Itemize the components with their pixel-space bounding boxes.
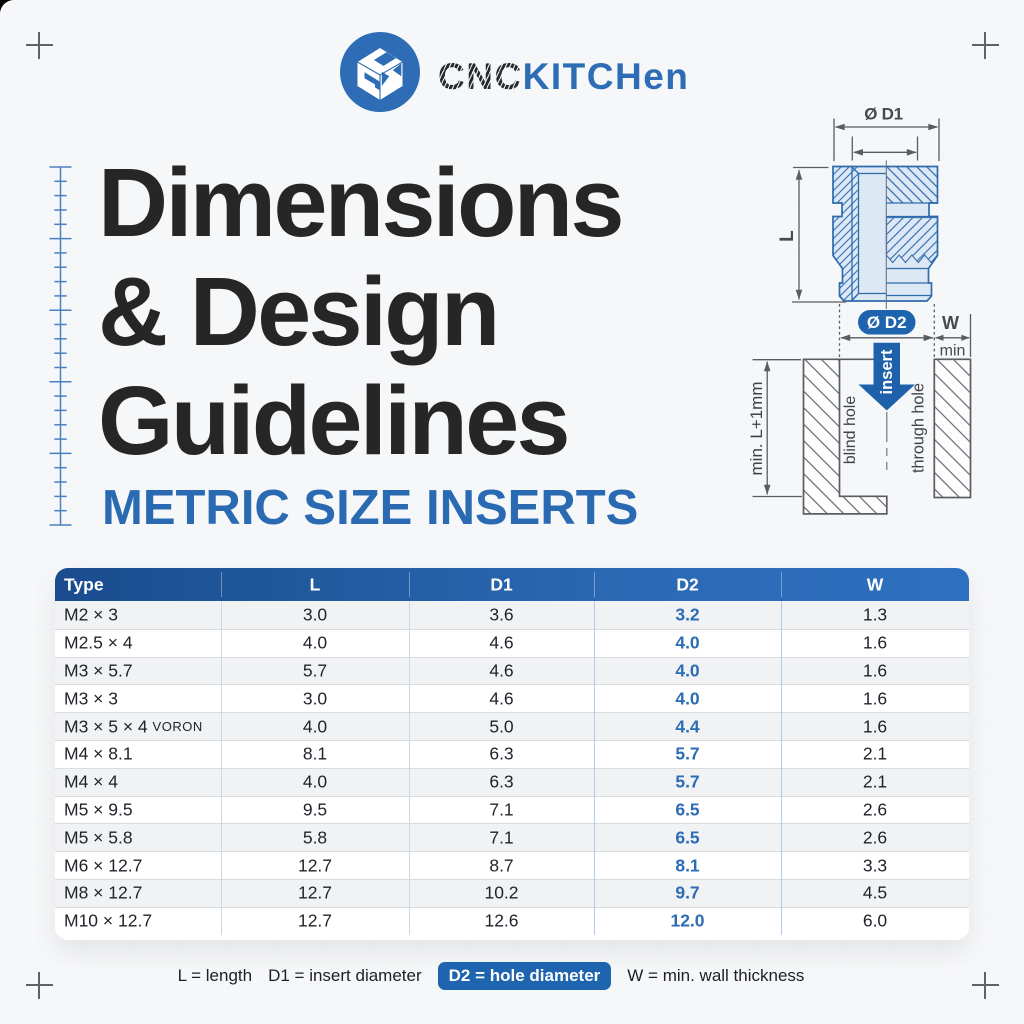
svg-text:Ø D1: Ø D1 <box>864 105 902 124</box>
svg-text:blind hole: blind hole <box>842 396 859 465</box>
svg-text:L: L <box>777 230 798 242</box>
svg-text:min: min <box>940 343 966 360</box>
svg-text:through hole: through hole <box>910 383 928 473</box>
svg-text:Ø D2: Ø D2 <box>867 313 907 332</box>
svg-text:insert: insert <box>878 349 896 394</box>
svg-text:min. L+1mm: min. L+1mm <box>747 382 766 476</box>
svg-text:W: W <box>942 313 959 333</box>
